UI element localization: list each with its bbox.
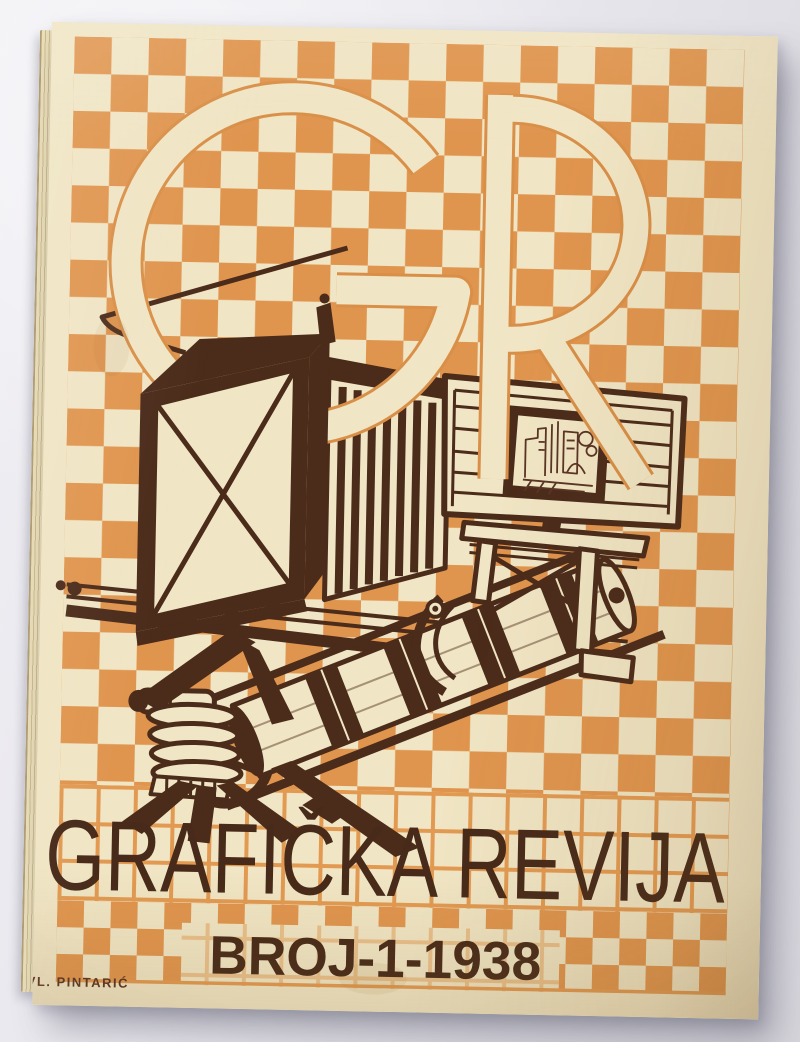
photo-backdrop: { "cover": { "monogram": { "letters": ["… (0, 0, 800, 1042)
magazine-cover: GRAFIČKA REVIJA BROJ-1-1938 VL. PINTARIĆ (32, 22, 778, 1019)
artist-signature: VL. PINTARIĆ (32, 974, 129, 991)
cover-title: GRAFIČKA REVIJA (44, 799, 726, 925)
cover-artwork: GRAFIČKA REVIJA BROJ-1-1938 VL. PINTARIĆ (32, 22, 778, 1019)
issue-number: BROJ-1-1938 (209, 925, 542, 992)
